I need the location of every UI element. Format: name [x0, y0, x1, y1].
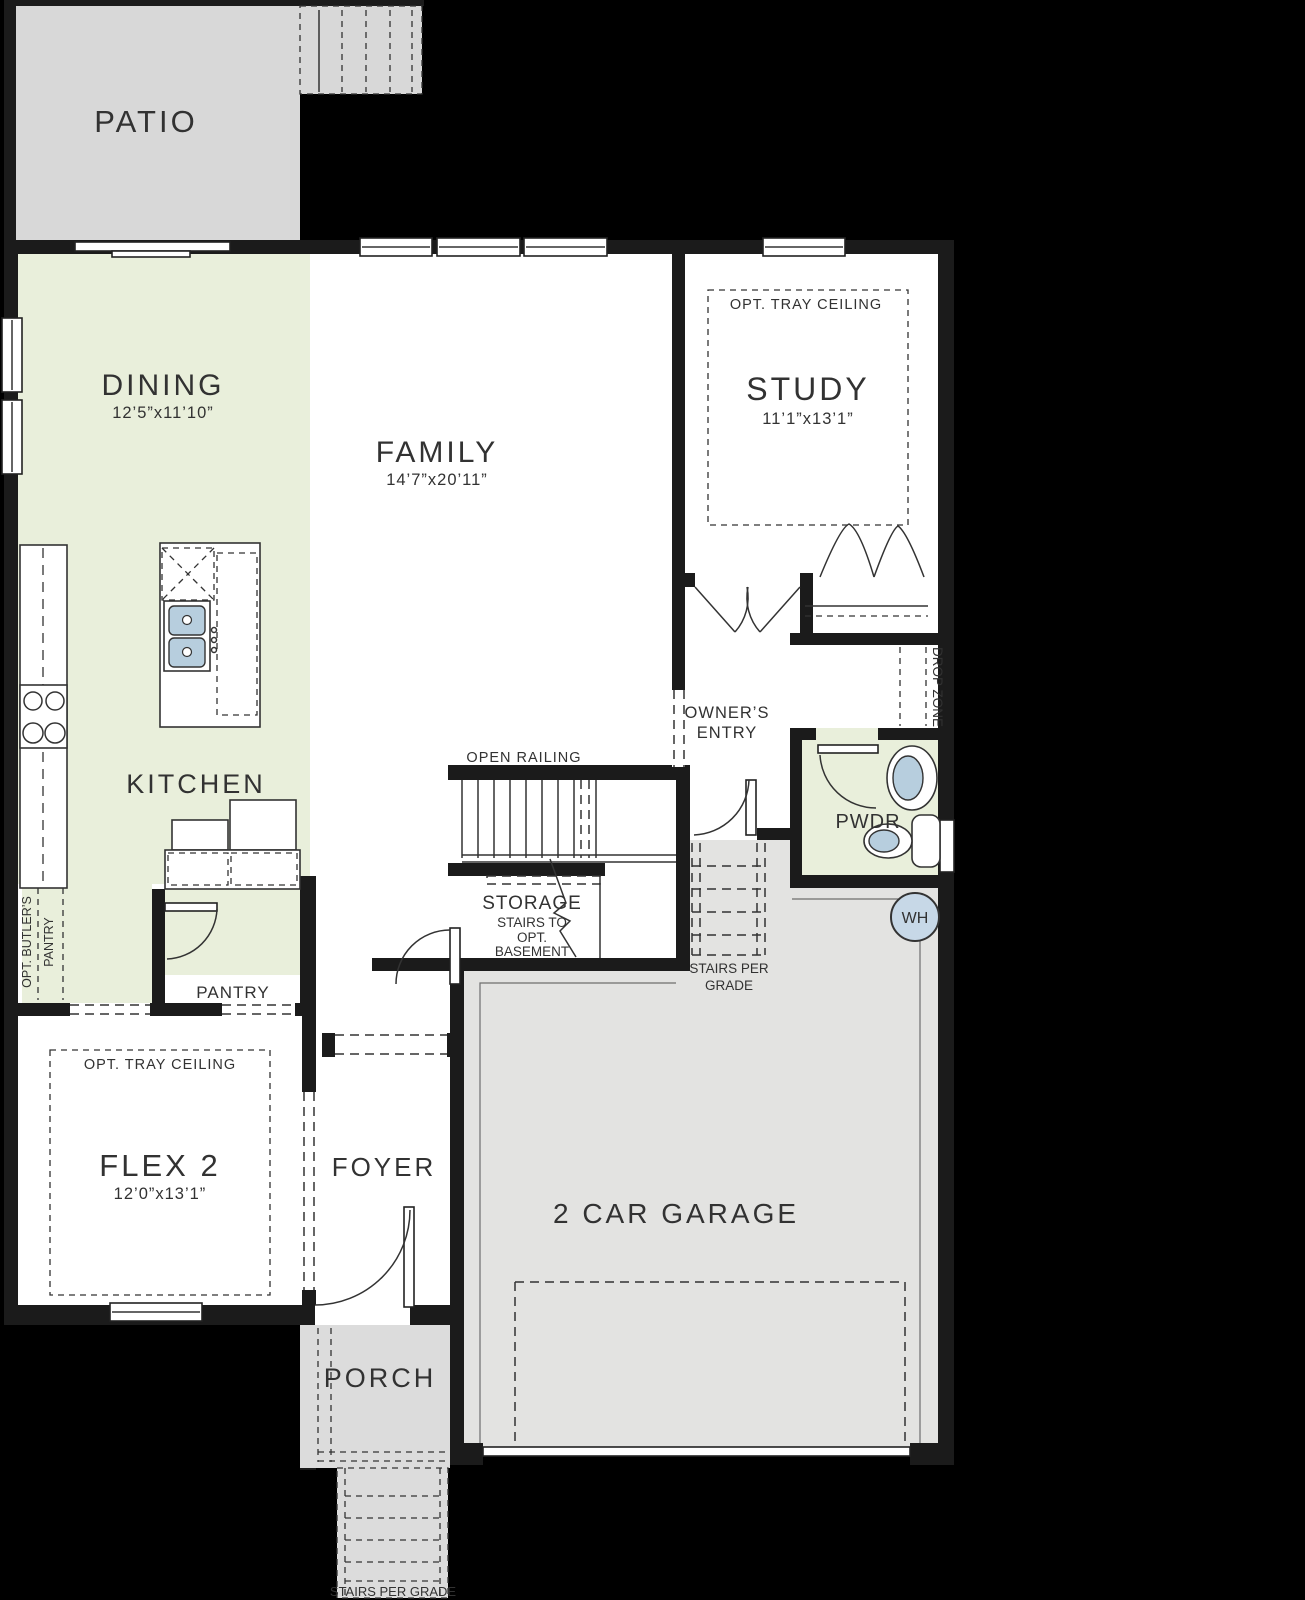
family-study-wall — [672, 253, 685, 690]
foyer-flex-wall-upper — [302, 1016, 316, 1092]
kitchen-label: KITCHEN — [126, 769, 266, 799]
closet-south-wall — [790, 633, 954, 645]
owners-entry-label-2: ENTRY — [697, 724, 758, 742]
garage-door-jamb-right — [910, 1443, 954, 1465]
storage-note-1: STAIRS TO — [497, 915, 567, 930]
hall-opening-stub-right — [447, 1033, 460, 1057]
foyer-label: FOYER — [332, 1152, 437, 1182]
door-leaf — [818, 745, 878, 753]
family-owners-opening — [672, 690, 685, 767]
stairs-garage-wall — [676, 765, 690, 958]
porch-label: PORCH — [324, 1363, 437, 1393]
patio-label: PATIO — [94, 104, 197, 139]
pwdr-south-wall — [790, 875, 954, 888]
water-heater: WH — [891, 893, 939, 941]
dining-dims: 12’5”x11’10” — [112, 404, 214, 422]
floor-plan-svg: PATIO — [0, 0, 1305, 1600]
pantry-floor — [165, 889, 300, 975]
butlers-pantry-label-2: PANTRY — [42, 917, 56, 967]
flex2-dims: 12’0”x13’1” — [114, 1185, 207, 1203]
storage-south-wall — [372, 958, 690, 971]
pwdr-window — [940, 820, 954, 872]
garage-door-jamb-left — [450, 1443, 483, 1465]
storage-note-2: OPT. — [517, 930, 547, 945]
counter-body — [165, 850, 300, 889]
drop-zone-label: DROP ZONE — [930, 647, 945, 727]
dining-label: DINING — [102, 369, 225, 402]
flex2-tray-label: OPT. TRAY CEILING — [84, 1057, 236, 1073]
study-door-stub-left — [672, 573, 695, 587]
sink-drain — [183, 616, 192, 625]
porch-floor — [300, 1325, 450, 1468]
storage-label: STORAGE — [482, 893, 582, 914]
pwdr-west-wall — [790, 728, 802, 888]
owners-entry-label-1: OWNER’S — [685, 704, 770, 722]
hall-opening-stub-left — [322, 1033, 335, 1057]
study-label: STUDY — [746, 371, 869, 407]
appliance-box — [230, 800, 296, 850]
owners-closet-wall — [800, 573, 813, 643]
toilet-bowl-inner — [869, 830, 899, 852]
pantry-west-wall — [152, 889, 165, 1003]
porch-stairs-label: STAIRS PER GRADE — [330, 1584, 457, 1599]
study-tray-label: OPT. TRAY CEILING — [730, 297, 882, 313]
floor-plan-canvas: PATIO — [0, 0, 1305, 1600]
storage-note-3: BASEMENT — [495, 944, 569, 959]
patio-stairs — [300, 6, 422, 94]
door-leaf — [450, 928, 460, 984]
door-opening — [816, 728, 878, 740]
door-leaf — [165, 903, 217, 911]
garage-stairs-label-2: GRADE — [705, 978, 753, 993]
sink-drain — [183, 648, 192, 657]
pwdr-sink-basin — [893, 756, 923, 800]
pantry-label: PANTRY — [196, 983, 269, 1002]
patio-west-wall — [4, 0, 16, 250]
appliance-box — [172, 820, 228, 850]
family-label: FAMILY — [376, 436, 498, 469]
slider-panel-2 — [112, 251, 190, 257]
door-opening — [315, 1305, 410, 1325]
open-railing-label: OPEN RAILING — [466, 750, 581, 766]
patio-north-edge — [4, 0, 424, 6]
pantry-east-wall — [300, 876, 316, 1016]
family-dims: 14’7”x20’11” — [386, 471, 488, 489]
butlers-pantry-label-1: OPT. BUTLER’S — [20, 896, 34, 988]
flex-foyer-opening — [302, 1092, 316, 1290]
toilet-tank — [912, 815, 940, 867]
porch-stairs — [337, 1468, 448, 1598]
garage-label: 2 CAR GARAGE — [553, 1198, 799, 1229]
garage-stairs-label-1: STAIRS PER — [689, 961, 769, 976]
flex2-label: FLEX 2 — [99, 1148, 220, 1183]
foyer-flex-wall-lower — [302, 1290, 316, 1307]
storage-north-wall — [448, 863, 605, 876]
kitchen-island — [160, 543, 260, 727]
water-heater-label: WH — [902, 910, 929, 927]
cooktop — [20, 685, 67, 748]
study-dims: 11’1”x13’1” — [762, 410, 853, 428]
garage-door — [483, 1447, 910, 1456]
stairs-north-wall — [448, 765, 690, 780]
porch-stairs-floor — [337, 1468, 448, 1598]
pwdr-label: PWDR — [835, 811, 900, 833]
slider-panel-1 — [75, 242, 230, 251]
